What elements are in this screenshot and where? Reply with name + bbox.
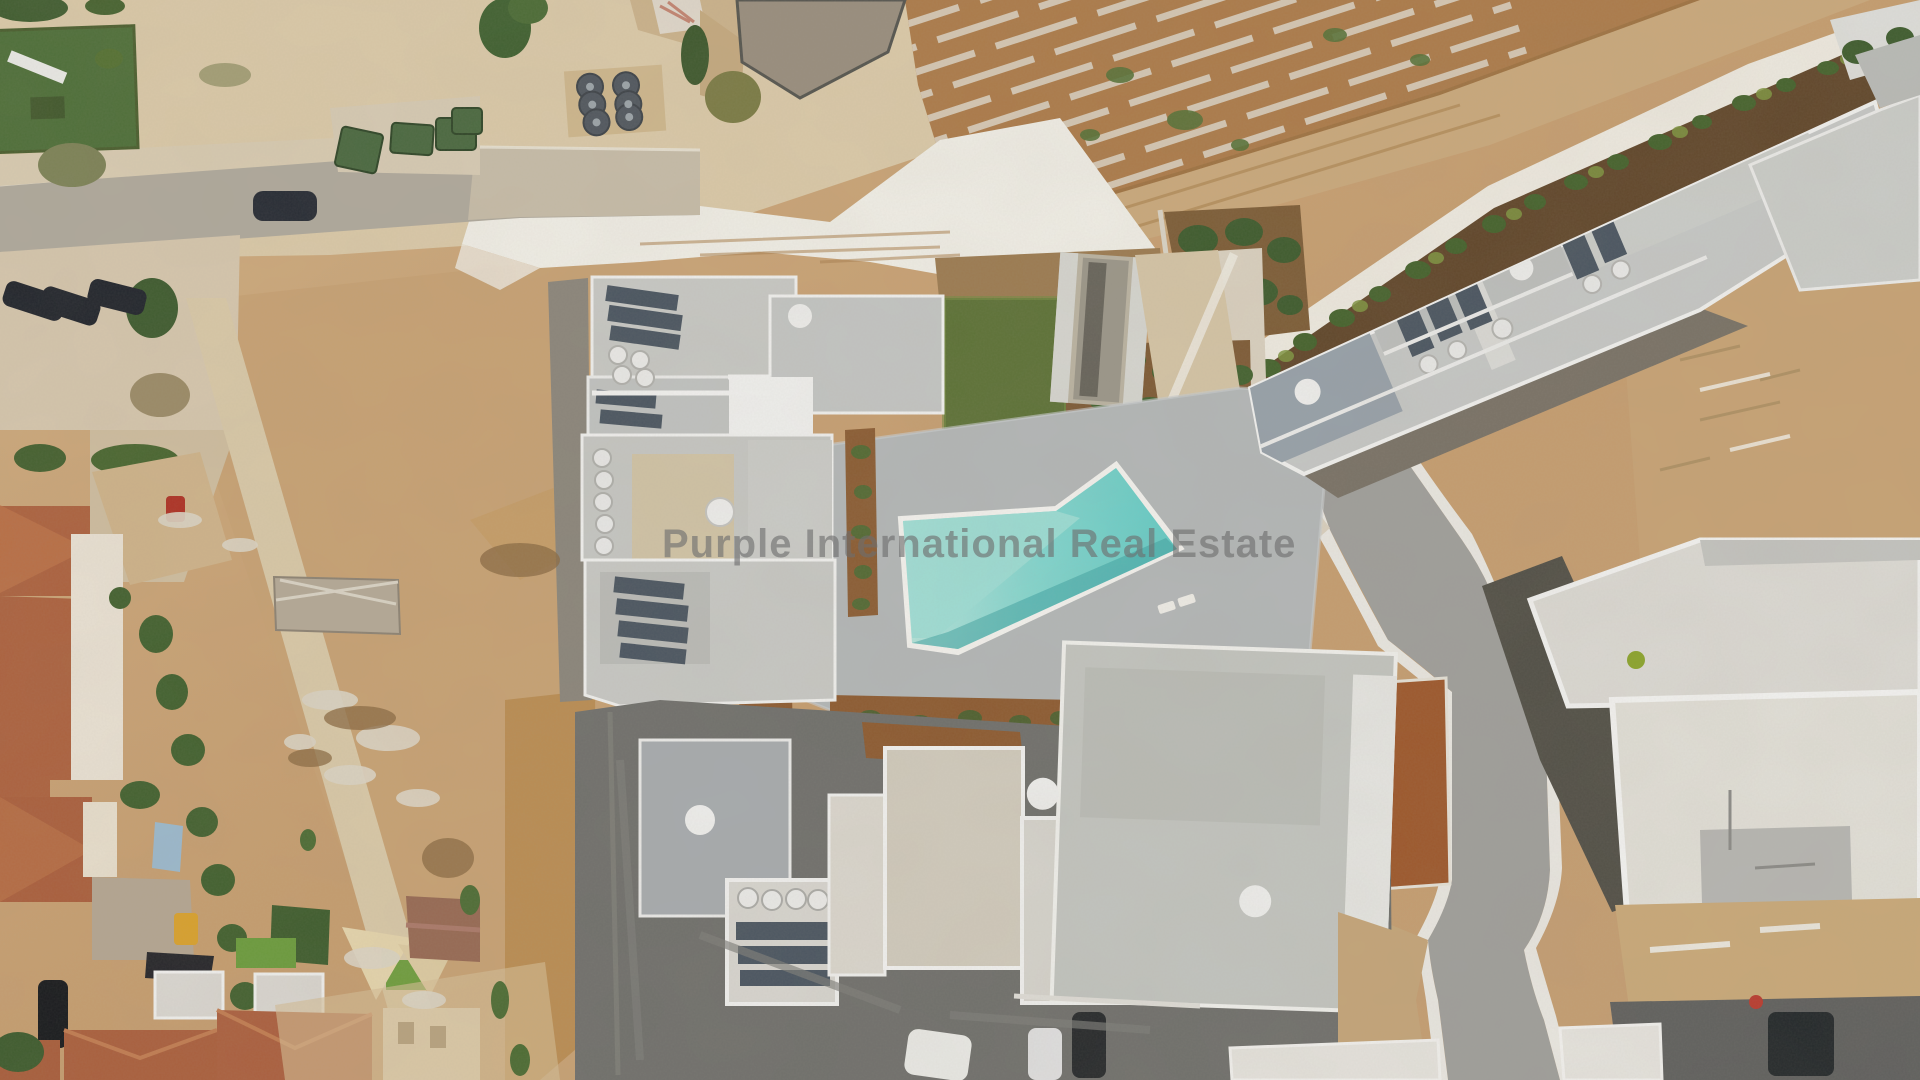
- svg-text:Purple International Real Esta: Purple International Real Estate: [662, 522, 1296, 566]
